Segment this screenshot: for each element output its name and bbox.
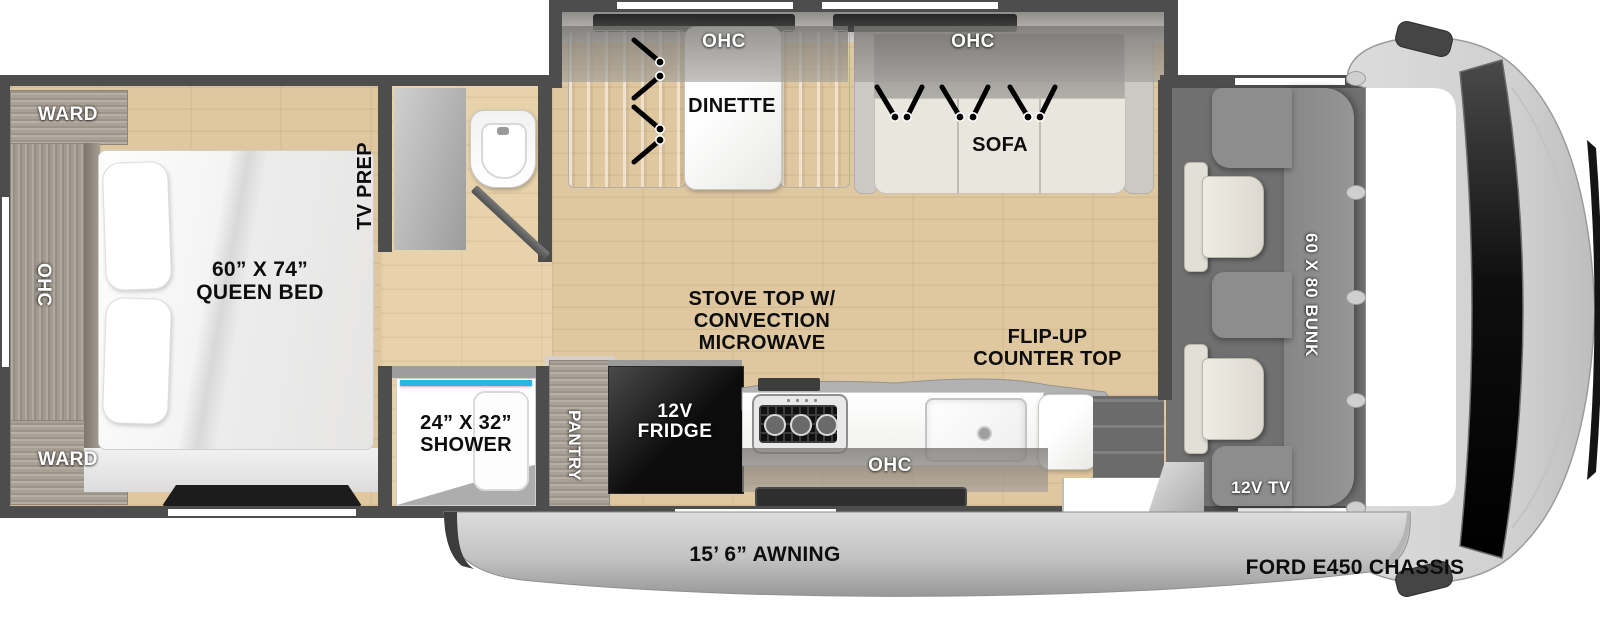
rv-floorplan: OHC OHC DINETTE SOFA 60” X 74” QUEEN BED… — [0, 0, 1600, 619]
top-wall-left — [0, 75, 562, 86]
stove-top — [752, 394, 848, 454]
stove-burner-3 — [816, 414, 838, 436]
cab-interior — [1366, 88, 1456, 506]
toilet-flush-button — [497, 127, 509, 135]
bunk-hinge-dot-4 — [1346, 393, 1366, 408]
stove-burner-1 — [764, 414, 786, 436]
flip-up-label-line1: FLIP-UP — [945, 326, 1150, 348]
bedroom-right-wall-bottom — [378, 366, 392, 514]
queen-bed-name: QUEEN BED — [170, 281, 350, 304]
tv-prep-label: TV PREP — [354, 126, 378, 246]
bedroom-right-wall-top — [378, 80, 392, 252]
chassis-label: FORD E450 CHASSIS — [1230, 556, 1480, 579]
awning-label: 15’ 6” AWNING — [640, 543, 890, 566]
stove-microwave-label: STOVE TOP W/ CONVECTION MICROWAVE — [662, 288, 862, 354]
flip-up-counter-label: FLIP-UP COUNTER TOP — [945, 326, 1150, 370]
cab-tv-label: 12V TV — [1218, 479, 1304, 497]
bunk-hinge-dot-2 — [1346, 185, 1366, 200]
queen-bed-size: 60” X 74” — [170, 258, 350, 281]
bunk-label: 60 X 80 BUNK — [1302, 195, 1320, 395]
pillow-top — [102, 161, 172, 291]
kitchen-ohc-label: OHC — [850, 456, 930, 476]
fridge-line1: 12V — [612, 402, 738, 422]
shower-top-ledge — [392, 366, 536, 378]
wardrobe-top-label: WARD — [18, 105, 118, 125]
passenger-seat-cushion — [1202, 358, 1264, 440]
shower-size: 24” X 32” — [396, 412, 536, 434]
shower-right-wall — [536, 366, 549, 514]
stove-label-line3: MICROWAVE — [662, 332, 862, 354]
bedroom-bottom-window — [168, 509, 356, 516]
seatbelt-marks — [560, 0, 1170, 200]
stove-knobs — [784, 398, 820, 403]
wardrobe-bottom-label: WARD — [18, 450, 118, 470]
sofa-label: SOFA — [955, 134, 1045, 156]
pantry-label: PANTRY — [565, 390, 583, 500]
shower-label: 24” X 32” SHOWER — [396, 412, 536, 456]
bunk-hinge-dot-3 — [1346, 290, 1366, 305]
bedroom-mat — [162, 485, 362, 506]
flip-up-label-line2: COUNTER TOP — [945, 348, 1150, 370]
fridge-label: 12V FRIDGE — [612, 402, 738, 442]
bathroom-wall-shade — [394, 88, 466, 250]
shower-glass-door — [400, 380, 532, 386]
driver-seat-cushion — [1202, 176, 1264, 258]
bunk-tab-middle — [1212, 272, 1292, 338]
bunk-tab-top — [1212, 88, 1292, 168]
counter-vent — [758, 378, 820, 391]
bunk-hinge-dot-1 — [1346, 71, 1366, 86]
bunk-tab-bottom — [1212, 446, 1292, 506]
stove-label-line2: CONVECTION — [662, 310, 862, 332]
queen-bed-label: 60” X 74” QUEEN BED — [170, 258, 350, 304]
stove-burner-2 — [790, 414, 812, 436]
fridge-line2: FRIDGE — [612, 422, 738, 442]
bathroom-right-wall — [538, 80, 552, 262]
bedroom-rear-window — [2, 197, 9, 367]
stove-label-line1: STOVE TOP W/ — [662, 288, 862, 310]
sink-drain — [977, 426, 992, 441]
dinette-label: DINETTE — [682, 95, 782, 117]
toilet — [470, 110, 536, 188]
ohc-bedroom-label: OHC — [33, 245, 53, 325]
shower-name: SHOWER — [396, 434, 536, 456]
pillow-bottom — [102, 297, 172, 425]
